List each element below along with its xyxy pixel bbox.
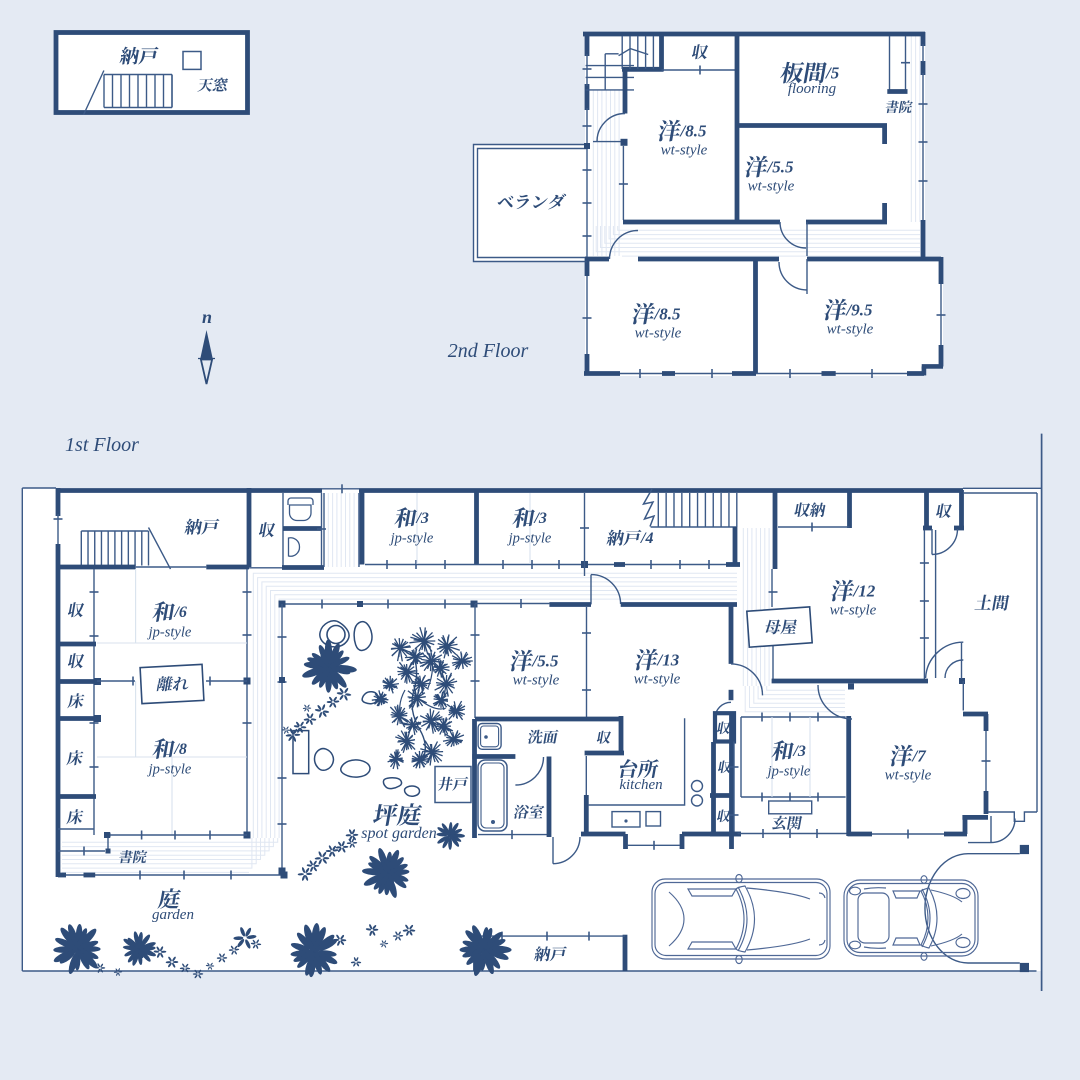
svg-text:/3: /3: [415, 510, 428, 527]
svg-text:wt-style: wt-style: [827, 322, 874, 338]
svg-text:/9.5: /9.5: [845, 300, 873, 319]
svg-text:jp-style: jp-style: [389, 530, 434, 546]
svg-text:/3: /3: [792, 743, 805, 760]
svg-text:/13: /13: [656, 650, 680, 669]
svg-text:2nd Floor: 2nd Floor: [448, 340, 529, 362]
svg-text:wt-style: wt-style: [885, 768, 932, 784]
svg-text:wt-style: wt-style: [513, 673, 560, 689]
svg-text:/3: /3: [533, 510, 546, 527]
svg-text:/8: /8: [173, 741, 186, 758]
svg-text:flooring: flooring: [788, 81, 837, 97]
svg-text:/4: /4: [640, 530, 653, 547]
svg-text:jp-style: jp-style: [507, 530, 552, 546]
svg-text:wt-style: wt-style: [661, 143, 708, 159]
svg-text:wt-style: wt-style: [748, 179, 795, 195]
svg-text:jp-style: jp-style: [766, 763, 811, 779]
svg-text:garden: garden: [152, 907, 194, 923]
svg-text:wt-style: wt-style: [635, 326, 682, 342]
svg-text:kitchen: kitchen: [619, 777, 662, 793]
svg-text:jp-style: jp-style: [147, 624, 192, 640]
svg-text:jp-style: jp-style: [147, 761, 192, 777]
svg-text:wt-style: wt-style: [830, 603, 877, 619]
svg-text:/8.5: /8.5: [653, 304, 681, 323]
svg-text:n: n: [202, 307, 212, 327]
svg-text:spot garden: spot garden: [361, 825, 436, 842]
svg-text:/5.5: /5.5: [531, 651, 559, 670]
svg-text:/5.5: /5.5: [766, 157, 794, 176]
svg-text:wt-style: wt-style: [634, 672, 681, 688]
svg-text:/5: /5: [824, 63, 840, 82]
svg-text:1st Floor: 1st Floor: [65, 434, 139, 456]
svg-text:/12: /12: [852, 581, 876, 600]
svg-text:/6: /6: [173, 604, 186, 621]
svg-text:/7: /7: [911, 746, 928, 765]
svg-text:/8.5: /8.5: [679, 121, 707, 140]
